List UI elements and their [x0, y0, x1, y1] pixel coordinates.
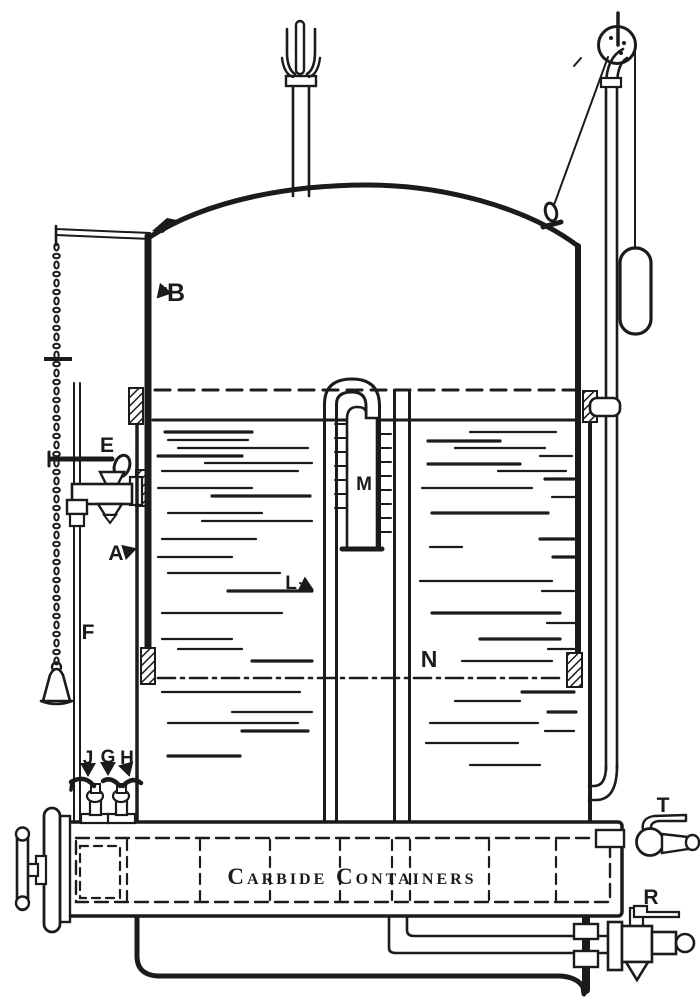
- bell-bracket-arm: [56, 235, 150, 239]
- chain-link: [53, 380, 60, 385]
- chain-link: [53, 488, 60, 493]
- chain-link: [54, 478, 58, 485]
- chain-link: [54, 550, 58, 557]
- pipe-union: [67, 500, 87, 514]
- counterweight-right: [620, 248, 651, 334]
- lifting-fork: [296, 21, 304, 74]
- cock-left[interactable]: [71, 779, 109, 823]
- chain-link: [53, 506, 60, 511]
- pipe-coupling-upper: [574, 924, 598, 939]
- bell-foot-right: [567, 653, 582, 687]
- label-pipe-n: N: [421, 646, 438, 672]
- chain-link: [53, 326, 60, 331]
- lifting-eye: [543, 202, 558, 222]
- chain-link: [54, 334, 58, 341]
- chain-link: [53, 254, 60, 259]
- valve-r[interactable]: [608, 906, 694, 980]
- chain-link: [53, 560, 60, 565]
- bell-dome: [148, 185, 578, 246]
- r-body: [622, 926, 652, 962]
- carbide-containers-label: Carbide Containers: [227, 864, 476, 889]
- acetylene-generator-diagram: Carbide Containers: [0, 0, 700, 1006]
- left-counterweight-gear: [41, 226, 150, 704]
- labels: B E A F L M N J G H T R: [82, 279, 670, 909]
- chain-link: [54, 370, 58, 377]
- bell-foot-left: [141, 648, 155, 684]
- chain-link: [54, 406, 58, 413]
- rope-to-bell: [554, 57, 608, 205]
- chain-link: [53, 614, 60, 619]
- chain-link: [53, 632, 60, 637]
- pipe-wall-union: [590, 398, 620, 416]
- chain-link: [54, 262, 58, 269]
- chain-link: [54, 622, 58, 629]
- chain-link: [54, 514, 58, 521]
- carbide-drawer: Carbide Containers: [16, 779, 699, 994]
- chain-link: [53, 542, 60, 547]
- label-bell-b: B: [167, 279, 185, 307]
- chain-link: [54, 604, 58, 611]
- chain-link: [54, 532, 58, 539]
- chain-link: [53, 596, 60, 601]
- chain-link: [53, 470, 60, 475]
- r-plug-cone: [626, 962, 648, 980]
- tank-rim-lug-left: [129, 388, 143, 424]
- chain-toggle: [44, 357, 72, 361]
- counterweight-left: [43, 669, 70, 701]
- chain-link: [53, 434, 60, 439]
- chain-link: [53, 524, 60, 529]
- drip-tip: [104, 515, 116, 523]
- chain-link: [53, 452, 60, 457]
- chain-link: [54, 298, 58, 305]
- chain-link: [54, 586, 58, 593]
- standpipe-elbow: [589, 766, 617, 800]
- label-cock-h: H: [120, 748, 134, 769]
- chain-link: [53, 344, 60, 349]
- r-flange: [608, 922, 622, 970]
- chain-link: [53, 290, 60, 295]
- chain-link: [54, 442, 58, 449]
- t-body: [637, 829, 664, 856]
- chain-link: [54, 388, 58, 395]
- label-cock-j: J: [83, 748, 94, 769]
- chain-link: [53, 308, 60, 313]
- t-outlet: [662, 834, 688, 853]
- chain-link: [54, 316, 58, 323]
- label-gauge-f: F: [82, 621, 95, 644]
- diagram-page: Carbide Containers: [0, 0, 700, 1006]
- r-outlet: [652, 932, 676, 954]
- chain-link: [54, 568, 58, 575]
- central-tubes: [325, 379, 410, 822]
- chain-link: [53, 650, 60, 655]
- chain-link: [54, 496, 58, 503]
- label-cock-e: E: [100, 434, 114, 457]
- chain-link: [54, 424, 58, 431]
- label-cock-g: G: [101, 747, 116, 768]
- label-feed-l: L: [285, 573, 297, 594]
- label-valve-r: R: [643, 886, 658, 909]
- chain-link: [54, 280, 58, 287]
- chain-link: [53, 272, 60, 277]
- stem-collar: [286, 76, 316, 86]
- label-cock-t: T: [657, 794, 670, 817]
- chain-link: [53, 398, 60, 403]
- label-gauge-m: M: [356, 474, 372, 495]
- label-tank-a: A: [108, 542, 123, 565]
- chain-link: [53, 578, 60, 583]
- pipe-coupling-lower: [574, 951, 598, 967]
- chain-link: [53, 362, 60, 367]
- chain-link: [53, 416, 60, 421]
- chain: [53, 244, 60, 665]
- tank-bottom: [137, 918, 584, 994]
- chain-link: [54, 640, 58, 647]
